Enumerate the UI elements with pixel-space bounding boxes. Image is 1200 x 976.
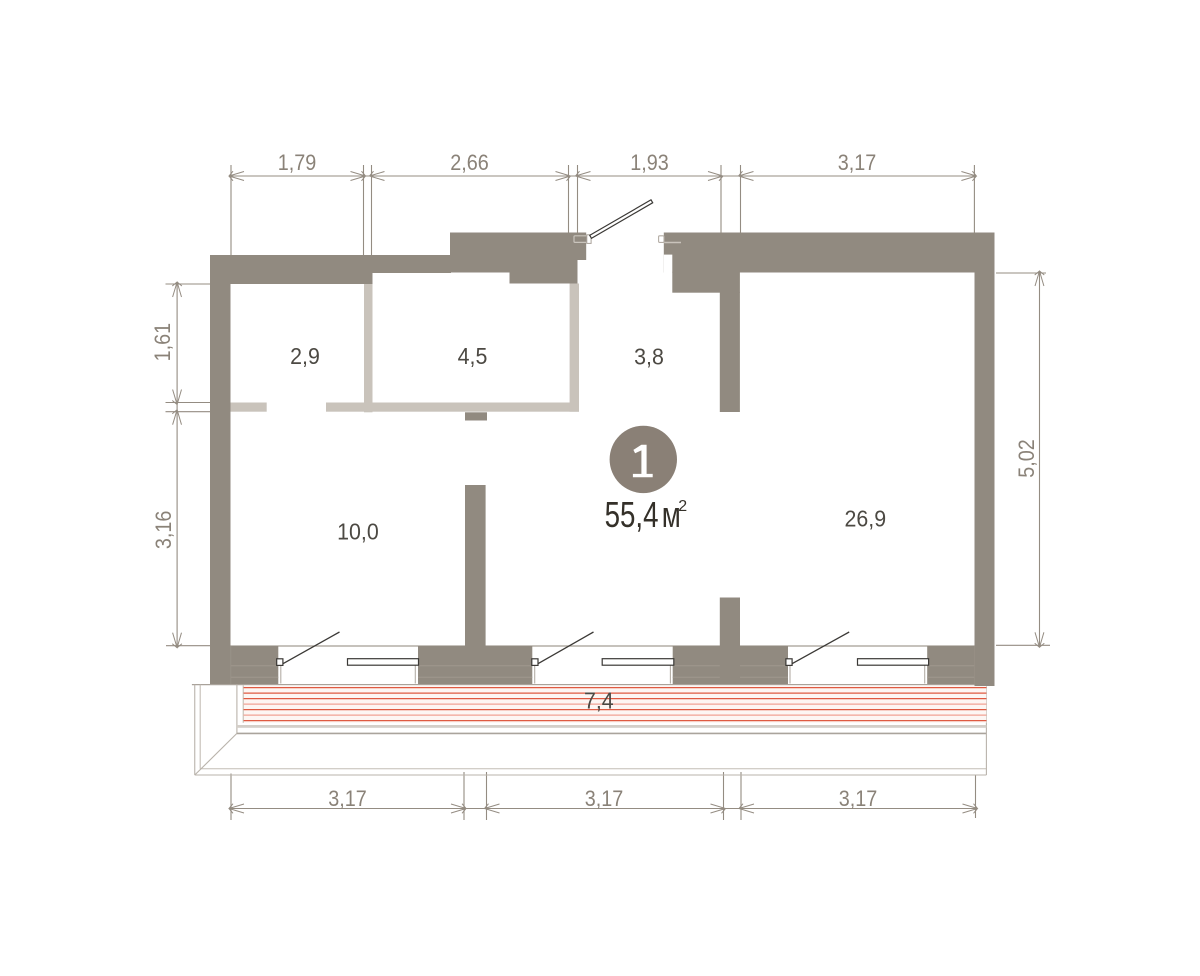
svg-text:3,17: 3,17 (839, 787, 878, 811)
svg-text:3,8: 3,8 (634, 344, 664, 370)
svg-text:3,16: 3,16 (152, 511, 176, 550)
svg-text:3,17: 3,17 (585, 787, 624, 811)
svg-text:7,4: 7,4 (584, 688, 614, 714)
svg-text:1,93: 1,93 (630, 151, 669, 175)
svg-text:1,79: 1,79 (278, 151, 317, 175)
svg-text:1,61: 1,61 (151, 323, 175, 362)
svg-text:2,66: 2,66 (450, 151, 489, 175)
svg-text:26,9: 26,9 (845, 506, 887, 532)
svg-text:3,17: 3,17 (838, 151, 877, 175)
svg-text:3,17: 3,17 (328, 787, 367, 811)
svg-text:10,0: 10,0 (337, 518, 379, 544)
svg-text:4,5: 4,5 (458, 343, 488, 369)
svg-text:2: 2 (678, 498, 687, 515)
svg-text:2,9: 2,9 (290, 343, 320, 369)
svg-text:5,02: 5,02 (1015, 439, 1039, 478)
svg-text:55,4: 55,4 (605, 495, 659, 535)
